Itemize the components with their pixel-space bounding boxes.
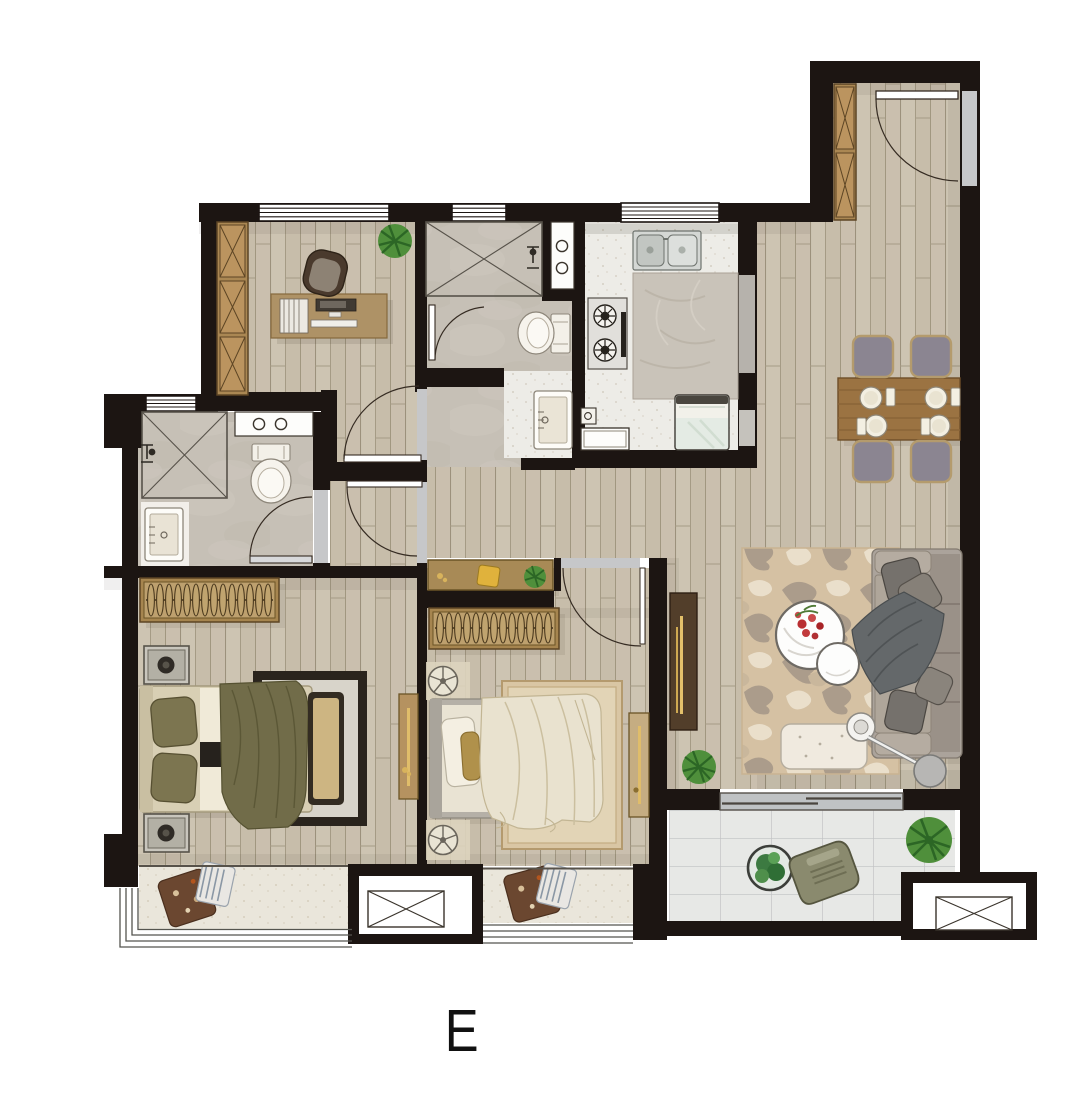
svg-text:E: E [445,997,479,1063]
